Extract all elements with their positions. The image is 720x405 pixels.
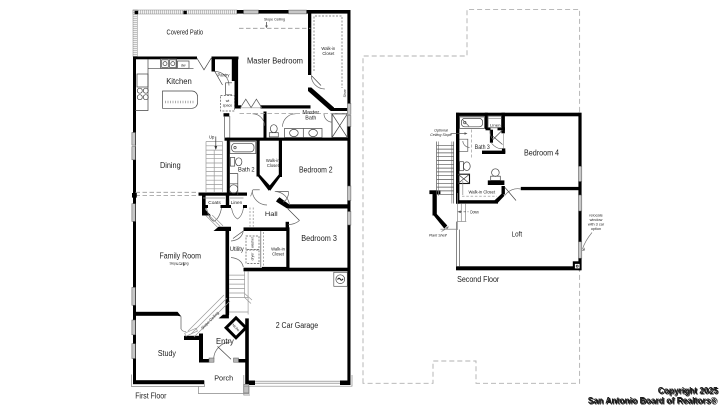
svg-text:with 3 car: with 3 car [588, 223, 605, 227]
svg-text:Covered Patio: Covered Patio [167, 30, 204, 37]
svg-text:Bath: Bath [305, 116, 316, 122]
svg-text:Loft: Loft [512, 229, 523, 238]
svg-text:dw: dw [181, 63, 186, 67]
svg-text:Bedroom 3: Bedroom 3 [301, 234, 337, 243]
svg-text:Utility: Utility [230, 247, 244, 253]
svg-text:2 Car Garage: 2 Car Garage [276, 321, 319, 330]
svg-text:Slope Ceiling: Slope Ceiling [264, 17, 285, 22]
svg-text:window: window [590, 218, 603, 222]
svg-text:option: option [591, 227, 601, 231]
svg-text:Closet: Closet [322, 51, 335, 56]
svg-text:Down: Down [470, 209, 479, 214]
svg-text:Walk-in Closet: Walk-in Closet [469, 190, 496, 195]
svg-text:Master Bedroom: Master Bedroom [247, 56, 303, 65]
svg-text:dryer: dryer [251, 252, 255, 261]
svg-text:First Floor: First Floor [135, 390, 166, 400]
svg-text:Closet: Closet [267, 163, 280, 168]
svg-text:Slope Ceiling: Slope Ceiling [170, 261, 189, 266]
svg-text:Porch: Porch [214, 374, 233, 383]
svg-text:washer: washer [251, 236, 255, 248]
svg-text:Plant Shelf: Plant Shelf [429, 232, 448, 237]
svg-text:Closet: Closet [272, 252, 285, 257]
svg-text:Bath 2: Bath 2 [238, 168, 255, 174]
svg-text:Shwr: Shwr [343, 88, 347, 97]
svg-text:Dining: Dining [160, 161, 181, 170]
svg-text:Kitchen: Kitchen [166, 77, 192, 86]
svg-text:relocate: relocate [589, 214, 603, 218]
svg-text:Linen: Linen [490, 122, 501, 127]
svg-text:San Antonio Board of Realtors®: San Antonio Board of Realtors® [589, 396, 718, 405]
svg-text:Coats: Coats [208, 200, 221, 205]
svg-text:Up: Up [209, 135, 215, 140]
svg-text:Pantry: Pantry [218, 73, 231, 78]
svg-text:Family Room: Family Room [159, 252, 201, 261]
svg-text:Second Floor: Second Floor [457, 274, 499, 284]
svg-text:Linen: Linen [231, 200, 243, 205]
svg-text:Bath 3: Bath 3 [475, 145, 491, 151]
svg-text:wt: wt [226, 99, 230, 103]
svg-text:space: space [223, 104, 233, 108]
svg-text:Bedroom 4: Bedroom 4 [524, 149, 560, 158]
svg-text:Bedroom 2: Bedroom 2 [299, 165, 333, 174]
svg-text:Optional: Optional [434, 128, 448, 132]
svg-text:Ceiling Slope: Ceiling Slope [430, 133, 452, 137]
svg-text:Hall: Hall [265, 211, 278, 218]
svg-text:Entry: Entry [216, 337, 234, 346]
svg-text:Study: Study [158, 349, 176, 358]
